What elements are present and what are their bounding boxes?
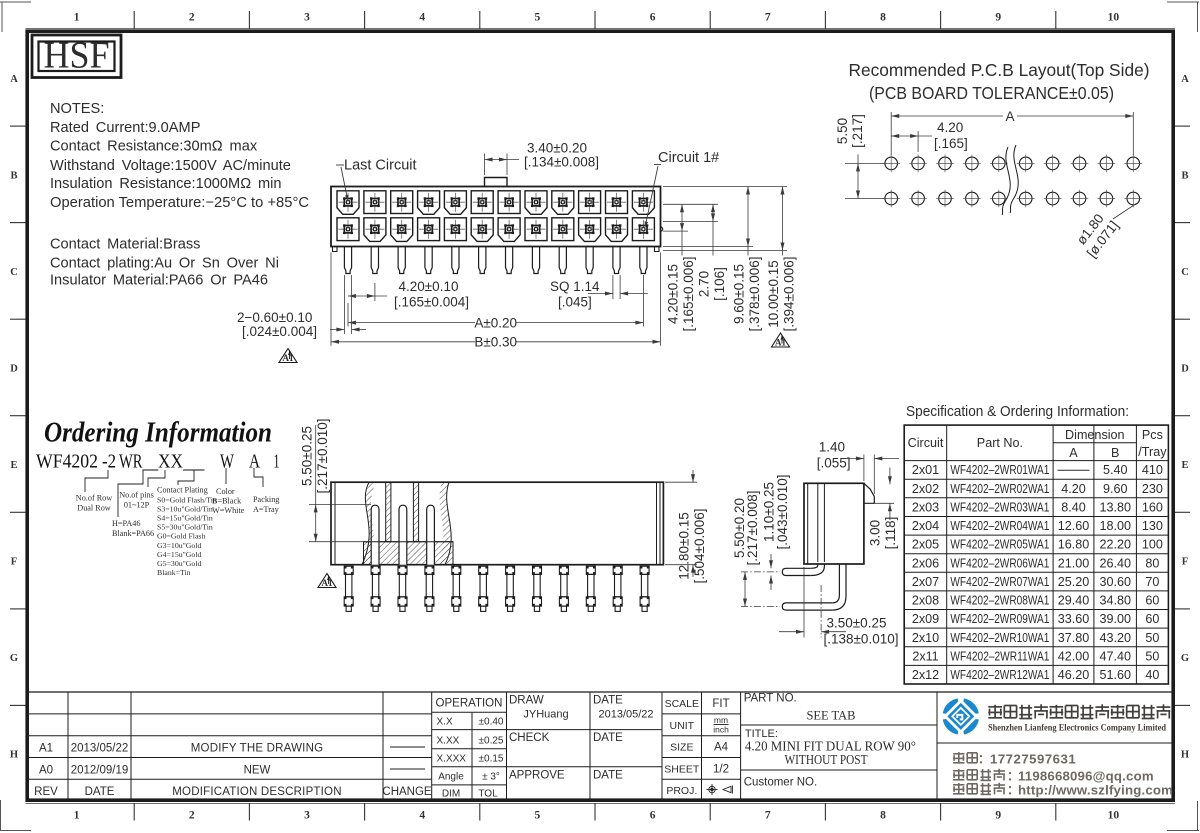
svg-text:A1: A1: [322, 578, 333, 588]
svg-text:-2: -2: [102, 451, 116, 473]
svg-text:Contact Plating: Contact Plating: [157, 486, 208, 495]
svg-text:2: 2: [189, 810, 195, 822]
svg-text:WF4202–2WR12WA1: WF4202–2WR12WA1: [950, 668, 1049, 682]
svg-text:Blank=Tin: Blank=Tin: [157, 568, 191, 577]
svg-text:9: 9: [995, 810, 1001, 822]
svg-text:3.50±0.25: 3.50±0.25: [827, 616, 887, 631]
svg-text:(PCB BOARD TOLERANCE±0.05): (PCB BOARD TOLERANCE±0.05): [869, 83, 1114, 103]
svg-text:2x05: 2x05: [912, 538, 939, 552]
svg-text:1.40: 1.40: [819, 440, 845, 455]
svg-text:WF4202–2WR04WA1: WF4202–2WR04WA1: [950, 519, 1049, 533]
svg-text:29.40: 29.40: [1058, 594, 1090, 608]
svg-text:± 3°: ± 3°: [482, 772, 500, 783]
svg-text:Operation Temperature:−25°C to: Operation Temperature:−25°C to +85°C: [50, 195, 309, 211]
svg-text:A: A: [1005, 109, 1014, 124]
svg-text:4.20: 4.20: [937, 120, 963, 135]
svg-text:3.40±0.20: 3.40±0.20: [527, 141, 587, 156]
svg-text:A: A: [1181, 74, 1189, 85]
svg-text:13.80: 13.80: [1099, 500, 1131, 514]
svg-text:[.138±0.010]: [.138±0.010]: [824, 632, 899, 647]
svg-text:Blank=PA66: Blank=PA66: [112, 529, 154, 538]
svg-text:A1: A1: [775, 338, 786, 348]
svg-text:5.50±0.25: 5.50±0.25: [299, 426, 314, 486]
svg-text:4.20±0.10: 4.20±0.10: [399, 279, 459, 294]
svg-text:REV: REV: [34, 786, 58, 798]
svg-text:37.80: 37.80: [1058, 631, 1090, 645]
svg-text:[.217]: [.217]: [850, 114, 865, 148]
svg-text:16.80: 16.80: [1058, 538, 1090, 552]
svg-text:B±0.30: B±0.30: [474, 335, 517, 350]
svg-text:2−0.60±0.10: 2−0.60±0.10: [237, 310, 312, 325]
svg-text:[.043±0.010]: [.043±0.010]: [775, 475, 790, 550]
svg-text:2x12: 2x12: [912, 668, 939, 682]
svg-text:8: 8: [880, 12, 886, 24]
svg-text:60: 60: [1145, 594, 1159, 608]
svg-text:HSF: HSF: [44, 35, 110, 77]
svg-text:C: C: [1181, 267, 1189, 278]
svg-text:3: 3: [304, 810, 310, 822]
svg-text:CHECK: CHECK: [509, 732, 550, 744]
svg-text:WF4202–2WR03WA1: WF4202–2WR03WA1: [950, 500, 1049, 514]
svg-text:SEE TAB: SEE TAB: [807, 708, 856, 723]
svg-text:SCALE: SCALE: [665, 698, 699, 710]
svg-text:160: 160: [1142, 500, 1163, 514]
svg-text:B: B: [10, 170, 17, 181]
svg-text:Customer NO.: Customer NO.: [744, 777, 818, 789]
svg-text:Angle: Angle: [438, 772, 464, 783]
svg-text:A1: A1: [283, 353, 294, 363]
svg-text:Contact Material:Brass: Contact Material:Brass: [50, 237, 200, 253]
svg-text:A±0.20: A±0.20: [474, 315, 517, 330]
svg-text:NEW: NEW: [244, 764, 271, 776]
svg-text:JYHuang: JYHuang: [523, 709, 568, 721]
svg-text:4.20±0.15: 4.20±0.15: [666, 264, 681, 324]
svg-text:2013/05/22: 2013/05/22: [71, 743, 129, 755]
svg-text:A=Tray: A=Tray: [253, 505, 280, 514]
svg-text:S5=30u"Gold/Tin: S5=30u"Gold/Tin: [157, 523, 213, 532]
svg-text:[.165]: [.165]: [934, 136, 968, 151]
svg-text:WR: WR: [119, 451, 143, 473]
svg-text:7: 7: [765, 12, 771, 24]
svg-text:WF4202–2WR01WA1: WF4202–2WR01WA1: [950, 463, 1049, 477]
svg-text:4: 4: [419, 12, 425, 24]
svg-text:410: 410: [1142, 463, 1163, 477]
svg-text:4: 4: [419, 810, 425, 822]
svg-text:[.217±0.010]: [.217±0.010]: [315, 419, 330, 494]
svg-text:TOL: TOL: [478, 789, 498, 800]
svg-text:2.70: 2.70: [697, 271, 712, 297]
svg-text:Part No.: Part No.: [977, 436, 1023, 450]
svg-text:[.165±0.004]: [.165±0.004]: [394, 295, 469, 310]
svg-text:130: 130: [1142, 519, 1163, 533]
svg-text:A: A: [10, 74, 18, 85]
svg-text:46.20: 46.20: [1058, 668, 1090, 682]
svg-text:DIM: DIM: [442, 789, 460, 800]
svg-text:PART NO.: PART NO.: [744, 693, 797, 705]
svg-text:DATE: DATE: [85, 786, 115, 798]
svg-text:18.00: 18.00: [1099, 519, 1131, 533]
svg-text:01~12P: 01~12P: [124, 501, 150, 510]
svg-text:Ordering Information: Ordering Information: [44, 417, 272, 449]
svg-text:F: F: [1182, 557, 1188, 568]
svg-text:43.20: 43.20: [1099, 631, 1131, 645]
svg-text:Rated Current:9.0AMP: Rated Current:9.0AMP: [50, 120, 200, 136]
svg-text:Last Circuit: Last Circuit: [344, 158, 417, 174]
svg-text:2013/05/22: 2013/05/22: [598, 709, 653, 721]
svg-text:H: H: [10, 750, 18, 761]
svg-text:[.045]: [.045]: [558, 295, 592, 310]
svg-text:F: F: [11, 557, 17, 568]
svg-text:[.055]: [.055]: [817, 456, 851, 471]
svg-text:50: 50: [1145, 631, 1159, 645]
svg-text:2x02: 2x02: [912, 482, 939, 496]
svg-text:CHANGE: CHANGE: [382, 786, 432, 798]
svg-text:9: 9: [995, 12, 1001, 24]
svg-text:230: 230: [1142, 482, 1163, 496]
svg-text:WF4202–2WR08WA1: WF4202–2WR08WA1: [950, 594, 1049, 608]
svg-text:2x10: 2x10: [912, 631, 939, 645]
svg-text:Color: Color: [216, 487, 235, 496]
svg-text:H: H: [1181, 750, 1189, 761]
svg-text:MODIFY THE DRAWING: MODIFY THE DRAWING: [191, 743, 323, 755]
svg-text:12.80±0.15: 12.80±0.15: [677, 512, 692, 579]
svg-text:17727597631: 17727597631: [990, 752, 1076, 767]
svg-text:1: 1: [74, 810, 80, 822]
svg-text:12.60: 12.60: [1058, 519, 1090, 533]
svg-text:2012/09/19: 2012/09/19: [71, 764, 129, 776]
svg-text:10: 10: [1108, 810, 1120, 822]
svg-text:30.60: 30.60: [1099, 575, 1131, 589]
svg-text:5: 5: [535, 810, 541, 822]
svg-text:9.60±0.15: 9.60±0.15: [732, 264, 747, 324]
svg-text:3: 3: [304, 12, 310, 24]
svg-text:S3=10u"Gold/Tin: S3=10u"Gold/Tin: [157, 505, 213, 514]
svg-text:Dimension: Dimension: [1065, 428, 1125, 442]
svg-text:10: 10: [1108, 12, 1120, 24]
svg-text:G5=30u"Gold: G5=30u"Gold: [157, 559, 201, 568]
svg-text:http://www.szlfying.com: http://www.szlfying.com: [1018, 783, 1173, 798]
svg-text:A4: A4: [714, 742, 729, 754]
svg-text:Recommended P.C.B Layout(Top S: Recommended P.C.B Layout(Top Side): [849, 60, 1150, 80]
svg-text:SQ 1.14: SQ 1.14: [550, 279, 600, 294]
svg-text:G3=10u"Gold: G3=10u"Gold: [157, 541, 201, 550]
svg-text:WF4202–2WR11WA1: WF4202–2WR11WA1: [950, 649, 1049, 663]
svg-text:±0.25: ±0.25: [479, 736, 504, 747]
svg-text:5: 5: [535, 12, 541, 24]
svg-text:A0: A0: [39, 764, 53, 776]
svg-text:DATE: DATE: [593, 695, 623, 707]
svg-text:5.40: 5.40: [1103, 463, 1128, 477]
svg-text:UNIT: UNIT: [670, 720, 695, 732]
svg-text:42.00: 42.00: [1058, 649, 1090, 663]
svg-text:DATE: DATE: [593, 732, 623, 744]
svg-text:PROJ.: PROJ.: [666, 785, 697, 797]
svg-text:G: G: [1181, 653, 1189, 664]
svg-text:3.00: 3.00: [868, 520, 883, 546]
svg-text:33.60: 33.60: [1058, 612, 1090, 626]
svg-text:Circuit 1#: Circuit 1#: [658, 150, 719, 166]
svg-text:B=Black: B=Black: [212, 497, 242, 506]
svg-text:2x11: 2x11: [912, 649, 938, 663]
svg-text:2x08: 2x08: [912, 594, 939, 608]
svg-text:Packing: Packing: [253, 495, 279, 504]
svg-text:51.60: 51.60: [1099, 668, 1131, 682]
svg-text:[.504±0.006]: [.504±0.006]: [692, 509, 707, 584]
svg-text:S0=Gold Flash/Tin: S0=Gold Flash/Tin: [157, 496, 217, 505]
svg-text:47.40: 47.40: [1099, 649, 1131, 663]
svg-text:B: B: [1181, 170, 1188, 181]
svg-text:Contact plating:Au Or Sn Over: Contact plating:Au Or Sn Over Ni: [50, 256, 279, 272]
svg-text:10.00±0.15: 10.00±0.15: [766, 260, 781, 327]
svg-text:1: 1: [74, 12, 80, 24]
svg-text:B: B: [1111, 446, 1119, 460]
svg-text:2x04: 2x04: [912, 519, 939, 533]
svg-text:2x06: 2x06: [912, 556, 939, 570]
svg-text:No.of pins: No.of pins: [119, 491, 154, 500]
svg-text:WF4202–2WR06WA1: WF4202–2WR06WA1: [950, 556, 1049, 570]
svg-text:MODIFICATION DESCRIPTION: MODIFICATION DESCRIPTION: [172, 786, 341, 798]
svg-text:No.of Row: No.of Row: [76, 494, 112, 503]
svg-text:H=PA46: H=PA46: [112, 519, 140, 528]
svg-text:WF4202–2WR05WA1: WF4202–2WR05WA1: [950, 538, 1049, 552]
svg-text:[.394±0.006]: [.394±0.006]: [782, 257, 797, 332]
svg-text:2x03: 2x03: [912, 500, 939, 514]
svg-text:E: E: [10, 460, 17, 471]
svg-text:OPERATION: OPERATION: [436, 698, 503, 710]
svg-text:WF4202–2WR07WA1: WF4202–2WR07WA1: [950, 575, 1049, 589]
svg-text:[.134±0.008]: [.134±0.008]: [524, 155, 599, 170]
svg-text:DRAW: DRAW: [509, 695, 544, 707]
svg-text:Dual Row: Dual Row: [77, 504, 111, 513]
svg-text:2: 2: [189, 12, 195, 24]
svg-text:25.20: 25.20: [1058, 575, 1090, 589]
svg-text:Specification & Ordering Infor: Specification & Ordering Information:: [906, 403, 1129, 420]
svg-text:[.165±0.006]: [.165±0.006]: [681, 257, 696, 332]
svg-text:80: 80: [1145, 556, 1159, 570]
svg-text:2x07: 2x07: [912, 575, 939, 589]
svg-text:Insulation Resistance:1000MΩ m: Insulation Resistance:1000MΩ min: [50, 176, 281, 192]
svg-text:D: D: [1181, 364, 1189, 375]
svg-text:8.40: 8.40: [1061, 500, 1086, 514]
svg-text:mm: mm: [714, 715, 728, 725]
svg-text:WF4202–2WR10WA1: WF4202–2WR10WA1: [950, 631, 1049, 645]
svg-text:4.20: 4.20: [1061, 482, 1086, 496]
svg-text:X.XX: X.XX: [437, 736, 460, 747]
svg-text:Insulator Material:PA66 Or PA4: Insulator Material:PA66 Or PA46: [50, 273, 268, 289]
svg-text:SHEET: SHEET: [664, 763, 700, 775]
svg-text:100: 100: [1142, 538, 1163, 552]
svg-text:2x09: 2x09: [912, 612, 939, 626]
svg-text:8: 8: [880, 810, 886, 822]
svg-text:[.024±0.004]: [.024±0.004]: [242, 324, 317, 339]
svg-text:[.217±0.008]: [.217±0.008]: [745, 491, 760, 566]
svg-text:6: 6: [650, 810, 656, 822]
svg-text:WITHOUT POST: WITHOUT POST: [785, 752, 869, 767]
svg-text:XX: XX: [158, 451, 183, 473]
svg-text:S4=15u"Gold/Tin: S4=15u"Gold/Tin: [157, 514, 213, 523]
svg-text:50: 50: [1145, 649, 1159, 663]
svg-text:A: A: [1069, 446, 1078, 460]
svg-text:60: 60: [1145, 612, 1159, 626]
svg-text:FIT: FIT: [712, 698, 729, 710]
svg-text:26.40: 26.40: [1099, 556, 1131, 570]
svg-text:Shenzhen Lianfeng Electronics: Shenzhen Lianfeng Electronics Company Li…: [988, 723, 1166, 733]
svg-text:9.60: 9.60: [1103, 482, 1128, 496]
svg-text:1/2: 1/2: [713, 763, 729, 775]
svg-text:Withstand Voltage:1500V AC/min: Withstand Voltage:1500V AC/minute: [50, 158, 291, 174]
svg-text:X.XXX: X.XXX: [437, 754, 467, 765]
svg-text:inch: inch: [713, 725, 729, 735]
svg-text:G4=15u"Gold: G4=15u"Gold: [157, 550, 201, 559]
svg-text:34.80: 34.80: [1099, 594, 1131, 608]
svg-text:Circuit: Circuit: [908, 436, 944, 450]
svg-text:G0=Gold Flash: G0=Gold Flash: [157, 532, 205, 541]
svg-text:[.118]: [.118]: [883, 517, 898, 550]
svg-text:[.378±0.006]: [.378±0.006]: [747, 257, 762, 332]
svg-text:21.00: 21.00: [1058, 556, 1090, 570]
svg-text:1: 1: [274, 451, 280, 473]
svg-text:C: C: [10, 267, 18, 278]
svg-text:WF4202–2WR02WA1: WF4202–2WR02WA1: [950, 482, 1049, 496]
svg-text:40: 40: [1145, 668, 1159, 682]
svg-text:±0.15: ±0.15: [479, 754, 504, 765]
svg-text:D: D: [10, 364, 18, 375]
svg-text:1198668096@qq.com: 1198668096@qq.com: [1018, 769, 1154, 784]
svg-text:Contact Resistance:30mΩ max: Contact Resistance:30mΩ max: [50, 139, 258, 155]
svg-text:NOTES:: NOTES:: [50, 101, 104, 117]
svg-text:W: W: [220, 451, 234, 473]
svg-text:5.50: 5.50: [835, 118, 850, 144]
svg-text:WF4202–2WR09WA1: WF4202–2WR09WA1: [950, 612, 1049, 626]
svg-text:WF4202: WF4202: [36, 451, 98, 473]
svg-text:A1: A1: [39, 743, 53, 755]
svg-text:2x01: 2x01: [912, 463, 939, 477]
svg-text:7: 7: [765, 810, 771, 822]
svg-text:Pcs: Pcs: [1142, 428, 1163, 442]
svg-text:70: 70: [1145, 575, 1159, 589]
svg-text:±0.40: ±0.40: [479, 717, 504, 728]
svg-text:W=White: W=White: [212, 506, 245, 515]
svg-text:39.00: 39.00: [1099, 612, 1131, 626]
svg-text:[.106]: [.106]: [712, 267, 727, 301]
svg-text:6: 6: [650, 12, 656, 24]
svg-text:DATE: DATE: [593, 770, 623, 782]
svg-text:A: A: [249, 451, 260, 473]
svg-text:APPROVE: APPROVE: [509, 770, 565, 782]
svg-text:SIZE: SIZE: [670, 742, 693, 754]
svg-text:X.X: X.X: [437, 717, 453, 728]
svg-text:E: E: [1181, 460, 1188, 471]
svg-text:：: ：: [978, 752, 990, 766]
svg-text:/Tray: /Tray: [1138, 445, 1167, 459]
svg-text:22.20: 22.20: [1099, 538, 1131, 552]
svg-text:G: G: [10, 653, 18, 664]
